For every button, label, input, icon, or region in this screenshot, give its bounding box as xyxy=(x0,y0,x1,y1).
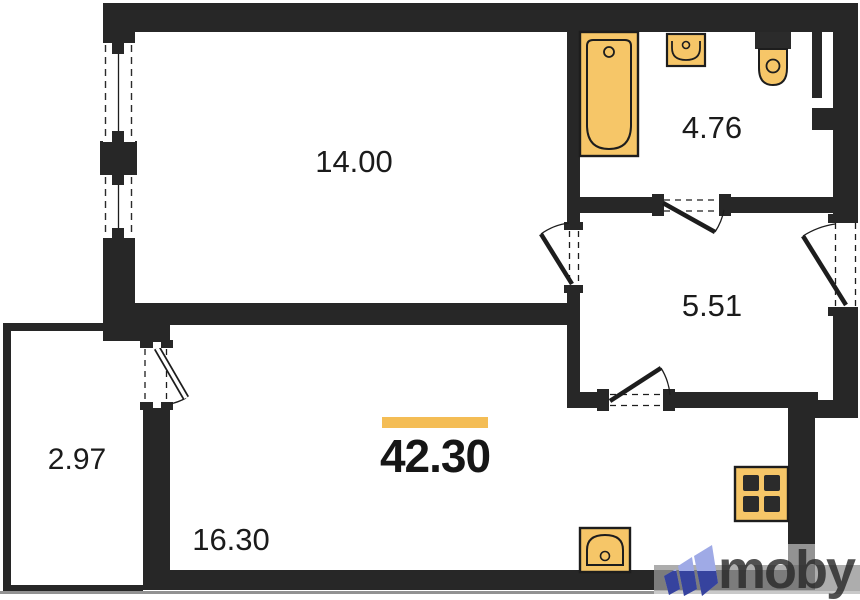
stove-burner xyxy=(743,496,759,512)
toilet-tank xyxy=(755,32,791,49)
total-area-accent-bar xyxy=(382,417,488,428)
wall-bath-bottom-left xyxy=(567,197,655,213)
window-lower xyxy=(103,175,135,238)
brand-name: moby xyxy=(718,544,854,598)
door-opening-dashed xyxy=(570,231,579,284)
bathtub-icon xyxy=(580,32,638,156)
room-area-label: 14.00 xyxy=(294,146,414,178)
wall-hall-bottom-left xyxy=(567,392,600,408)
wall-bath-bottom-right xyxy=(728,197,833,213)
door-latch-notch xyxy=(153,402,161,408)
wall-bath-left xyxy=(567,32,580,213)
balcony-border-bottom xyxy=(3,585,143,591)
wall-corner-block xyxy=(103,303,170,341)
door-balcony xyxy=(145,342,186,408)
door-swing-arc xyxy=(803,224,835,236)
total-area-label: 42.30 xyxy=(370,436,500,476)
entrance-jamb-bottom xyxy=(828,307,858,316)
wall-window-block xyxy=(100,141,137,175)
window-frame-mark xyxy=(112,43,124,54)
wall-hall-left-b xyxy=(567,293,580,392)
floor-plan: 14.00 4.76 5.51 2.97 16.30 42.30 moby xyxy=(0,0,860,600)
hall-bottom-jamb-left xyxy=(597,389,609,411)
vent-niche-finger xyxy=(812,32,822,98)
toilet-bowl xyxy=(759,49,787,85)
wall-top xyxy=(103,3,858,32)
door-leaf xyxy=(663,203,715,232)
balcony-area-label: 2.97 xyxy=(27,444,127,476)
stove-burner xyxy=(764,496,780,512)
bathroom-area-label: 4.76 xyxy=(662,112,762,144)
bath-sink-icon xyxy=(667,34,705,66)
bath-door-jamb-right xyxy=(719,194,731,216)
toilet-icon xyxy=(755,32,791,85)
door-latch-notch xyxy=(153,342,161,348)
wall-corner-L xyxy=(815,400,858,418)
hallway-area-label: 5.51 xyxy=(662,290,762,322)
brand-watermark: moby xyxy=(654,544,860,600)
living-kitchen-area-label: 16.30 xyxy=(181,524,281,556)
door-living xyxy=(610,368,670,406)
kitchen-sink-icon xyxy=(580,528,630,572)
balcony-border-left xyxy=(3,323,11,590)
hall-bottom-jamb-right xyxy=(663,389,675,411)
window-frame-mark xyxy=(112,228,124,238)
door-room14 xyxy=(541,223,579,284)
door-bathroom xyxy=(663,200,724,232)
window-frame-mark xyxy=(112,175,124,185)
stove-burner xyxy=(764,475,780,491)
hall-door-jamb-bottom xyxy=(564,285,583,293)
stove-icon xyxy=(735,467,788,521)
stove-burner xyxy=(743,475,759,491)
wall-divider xyxy=(103,303,567,325)
balcony-border-top xyxy=(3,323,103,331)
wall-hall-left-a xyxy=(567,213,580,222)
window-upper xyxy=(103,43,135,142)
wall-balcony-door-lower xyxy=(143,402,170,570)
wall-right-upper xyxy=(833,3,858,214)
door-leaf xyxy=(541,234,572,284)
entrance-jamb-top xyxy=(828,214,858,223)
door-entrance xyxy=(803,223,856,306)
door-leaf xyxy=(803,236,846,305)
vent-niche-stub xyxy=(812,108,833,130)
door-leaf xyxy=(157,348,186,398)
window-frame-mark xyxy=(112,131,124,142)
door-leaf xyxy=(610,368,661,401)
